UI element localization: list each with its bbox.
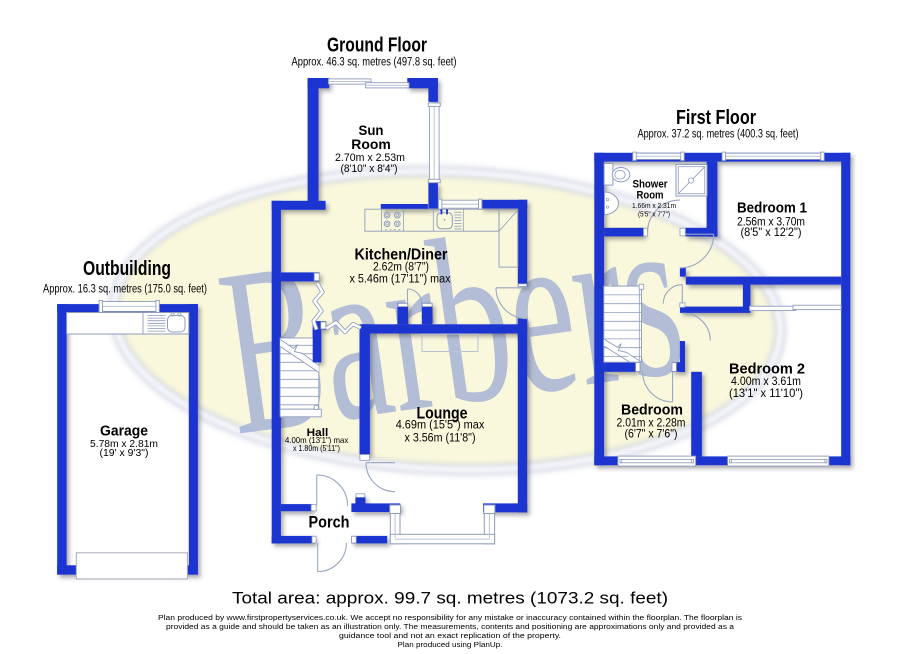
svg-text:4.69m (15'5") max: 4.69m (15'5") max bbox=[396, 420, 485, 432]
svg-text:(13'1" x 11'10"): (13'1" x 11'10") bbox=[729, 386, 803, 400]
svg-text:First Floor: First Floor bbox=[676, 107, 756, 129]
svg-text:(8'10" x 8'4"): (8'10" x 8'4") bbox=[341, 163, 398, 175]
svg-text:provided as a guide and should: provided as a guide and should be taken … bbox=[166, 624, 734, 631]
svg-text:Ground Floor: Ground Floor bbox=[327, 35, 427, 57]
svg-text:x 3.56m (11'8"): x 3.56m (11'8") bbox=[405, 433, 476, 445]
svg-text:(6'7" x 7'6"): (6'7" x 7'6") bbox=[625, 427, 678, 441]
svg-text:Approx. 46.3 sq. metres (497.8: Approx. 46.3 sq. metres (497.8 sq. feet) bbox=[292, 57, 457, 69]
svg-text:Plan produced by www.firstprop: Plan produced by www.firstpropertyservic… bbox=[158, 615, 743, 622]
svg-text:Porch: Porch bbox=[309, 513, 350, 532]
svg-text:Outbuilding: Outbuilding bbox=[83, 258, 171, 280]
svg-text:(8'5" x 12'2"): (8'5" x 12'2") bbox=[741, 225, 802, 239]
svg-text:guidance tool and not an exact: guidance tool and not an exact replicati… bbox=[339, 633, 561, 640]
svg-text:(5'5" x 7'7"): (5'5" x 7'7") bbox=[638, 210, 670, 219]
svg-text:(19' x 9'3"): (19' x 9'3") bbox=[100, 447, 149, 459]
svg-text:Plan produced using PlanUp.: Plan produced using PlanUp. bbox=[398, 642, 503, 649]
svg-text:x 1.80m (5'11"): x 1.80m (5'11") bbox=[293, 443, 340, 453]
svg-text:2.62m (8'7"): 2.62m (8'7") bbox=[373, 262, 429, 274]
svg-text:x 5.46m (17'11") max: x 5.46m (17'11") max bbox=[350, 274, 451, 286]
svg-text:Total area: approx. 99.7 sq. m: Total area: approx. 99.7 sq. metres (107… bbox=[232, 589, 668, 608]
svg-text:Room: Room bbox=[637, 190, 664, 202]
svg-text:Room: Room bbox=[351, 136, 391, 152]
svg-text:Approx. 16.3 sq. metres (175.0: Approx. 16.3 sq. metres (175.0 sq. feet) bbox=[43, 283, 207, 295]
svg-text:Approx. 37.2 sq. metres (400.3: Approx. 37.2 sq. metres (400.3 sq. feet) bbox=[638, 129, 799, 141]
